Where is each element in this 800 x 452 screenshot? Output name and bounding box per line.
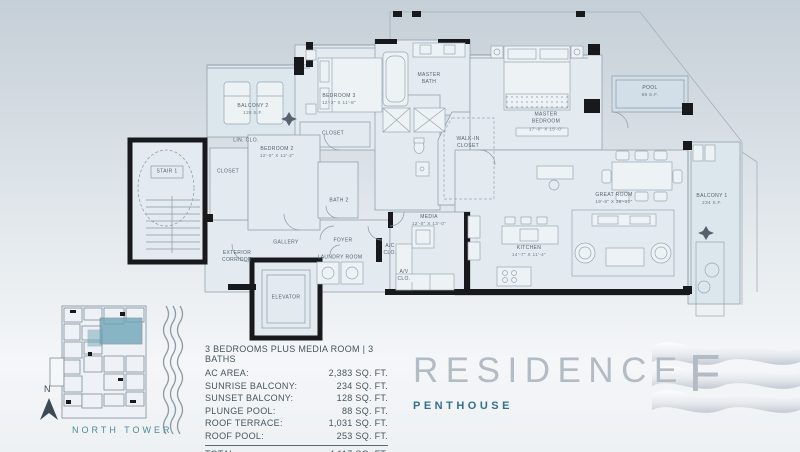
room-label-kitchen: KITCHEN14'-7" X 11'-4"	[512, 245, 546, 259]
legend-row: ROOF TERRACE:1,031 SQ. FT.	[205, 417, 388, 430]
residence-letter: F	[689, 353, 721, 396]
room-label-bedroom-3: BEDROOM 312'-2" X 11'-8"	[322, 93, 356, 107]
legend-row: AC AREA:2,383 SQ. FT.	[205, 367, 388, 380]
room-label-elevator: ELEVATOR	[272, 294, 301, 301]
room-label-linen-closet: LIN. CLO.	[233, 137, 258, 144]
legend-row: ROOF POOL:253 SQ. FT.	[205, 430, 388, 443]
north-label: N	[44, 384, 51, 394]
floorplan-page: BALCONY 2128 S.F. BEDROOM 312'-2" X 11'-…	[0, 0, 800, 452]
key-plan-unit-highlight	[100, 318, 142, 344]
room-label-balcony-1: BALCONY 1234 S.F.	[696, 193, 727, 207]
room-label-laundry-room: LAUNDRY ROOM	[318, 254, 363, 261]
tower-label: NORTH TOWER	[72, 425, 173, 435]
room-label-bath-2: BATH 2	[329, 197, 348, 204]
residence-word: RESIDENCE	[413, 353, 685, 388]
room-label-closet-bedroom2: CLOSET	[217, 168, 239, 175]
legend-row: PLUNGE POOL:88 SQ. FT.	[205, 405, 388, 418]
room-label-closet-bedroom3: CLOSET	[322, 130, 344, 137]
key-plan-north-tower	[50, 306, 146, 418]
residence-title-block: RESIDENCE F PENTHOUSE	[413, 353, 720, 412]
room-label-gallery: GALLERY	[273, 239, 298, 246]
room-label-master-bedroom: MASTERBEDROOM17'-0" X 15'-0"	[529, 111, 563, 132]
legend-row: SUNSET BALCONY:128 SQ. FT.	[205, 392, 388, 405]
room-label-walk-in-closet: WALK-INCLOSET	[456, 136, 479, 151]
legend-row: SUNRISE BALCONY:234 SQ. FT.	[205, 380, 388, 393]
legend-total-row: TOTAL:4,117 SQ. FT.	[205, 445, 388, 452]
room-label-media: MEDIA12'-0" X 13'-0"	[412, 214, 446, 228]
room-label-great-room: GREAT ROOM19'-8" X 36'-10"	[595, 192, 632, 206]
room-label-balcony-2: BALCONY 2128 S.F.	[237, 103, 268, 117]
vertical-waves-icon	[164, 306, 183, 434]
penthouse-subtitle: PENTHOUSE	[413, 400, 720, 412]
north-arrow-icon	[40, 398, 58, 420]
room-label-pool: POOL88 S.F.	[642, 85, 659, 99]
room-label-ac-closet: A/CCLO.	[383, 243, 396, 258]
room-label-av-closet: A/VCLO.	[397, 269, 410, 284]
area-legend: 3 BEDROOMS PLUS MEDIA ROOM | 3 BATHS AC …	[205, 344, 388, 452]
room-label-foyer: FOYER	[334, 237, 353, 244]
room-label-bedroom-2: BEDROOM 212'-0" X 12'-2"	[260, 146, 294, 160]
room-label-exterior-corridor: EXTERIORCORRIDOR	[222, 250, 252, 265]
legend-header: 3 BEDROOMS PLUS MEDIA ROOM | 3 BATHS	[205, 344, 388, 364]
room-label-stair-1: STAIR 1	[157, 168, 178, 175]
room-label-master-bath: MASTERBATH	[418, 72, 441, 87]
